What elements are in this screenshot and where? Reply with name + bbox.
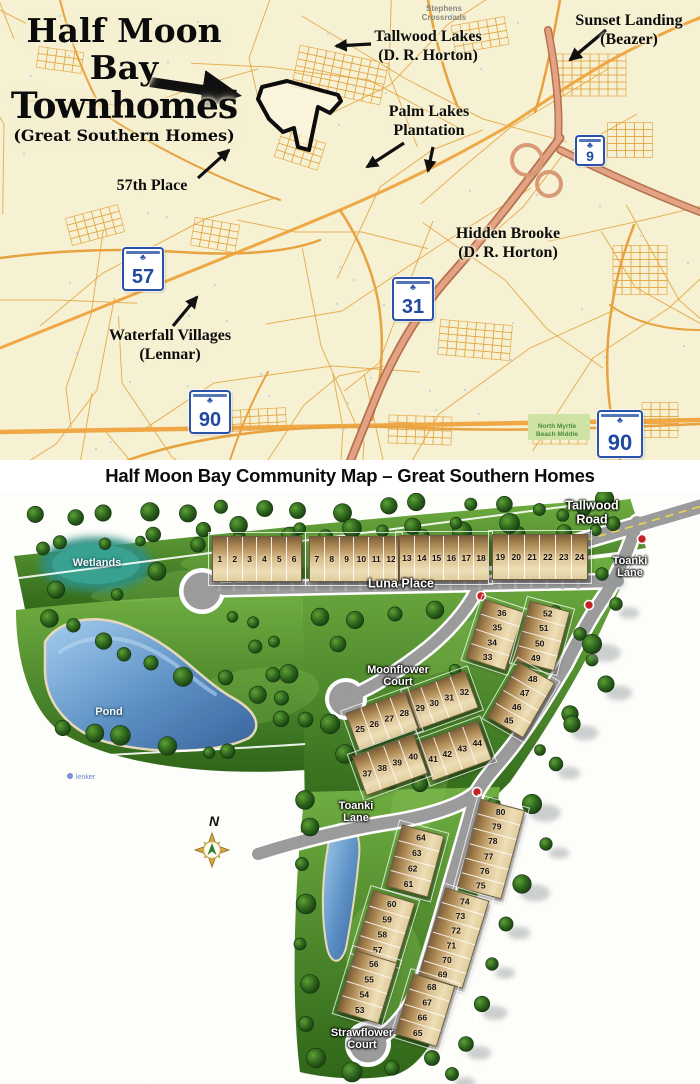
- arrow-palm-lakes-1: [367, 143, 404, 167]
- lot-number-26: 26: [370, 719, 379, 729]
- lot-number-10: 10: [357, 554, 366, 564]
- lot-7: 7: [310, 537, 324, 581]
- lot-number-8: 8: [329, 554, 334, 564]
- lot-number-22: 22: [543, 552, 552, 562]
- lot-number-69: 69: [438, 969, 447, 979]
- lot-number-73: 73: [456, 911, 465, 921]
- lot-number-58: 58: [378, 930, 387, 940]
- route-number: 57: [124, 265, 162, 289]
- annotation-hidden-brooke: Hidden Brooke(D. R. Horton): [456, 224, 560, 262]
- lot-number-1: 1: [218, 554, 223, 564]
- lot-number-18: 18: [476, 553, 485, 563]
- lot-number-38: 38: [378, 763, 387, 773]
- arrow-waterfall-villages: [173, 297, 197, 326]
- lot-number-24: 24: [575, 552, 584, 562]
- lot-number-77: 77: [484, 851, 493, 861]
- lot-number-6: 6: [292, 554, 297, 564]
- compass-rose: N: [195, 813, 229, 867]
- lot-number-12: 12: [386, 554, 395, 564]
- lot-20: 20: [508, 535, 524, 579]
- lot-number-36: 36: [497, 608, 506, 618]
- lot-number-3: 3: [247, 554, 252, 564]
- lot-number-47: 47: [520, 688, 529, 698]
- lot-number-14: 14: [417, 553, 426, 563]
- lot-number-21: 21: [527, 552, 536, 562]
- street-label-toanki-lane-upper: ToankiLane: [613, 555, 648, 579]
- lot-number-61: 61: [404, 879, 413, 889]
- lot-number-72: 72: [451, 926, 460, 936]
- lot-number-23: 23: [559, 552, 568, 562]
- lot-number-25: 25: [355, 724, 364, 734]
- lot-number-13: 13: [402, 553, 411, 563]
- lot-number-16: 16: [447, 553, 456, 563]
- page: Half Moon Bay Townhomes (Great Southern …: [0, 0, 700, 1084]
- lot-number-52: 52: [543, 609, 552, 619]
- lot-number-2: 2: [232, 554, 237, 564]
- area-label-pond: Pond: [95, 706, 123, 718]
- annotation-stephens-crossroads: StephensCrossroads: [422, 4, 466, 22]
- site-plan: N lenker 1234567891011121314151617181920…: [0, 492, 700, 1084]
- caption-text: Half Moon Bay Community Map – Great Sout…: [105, 465, 595, 487]
- stop-dot-luna-toanki: [585, 601, 594, 610]
- lot-number-39: 39: [393, 757, 402, 767]
- lot-number-63: 63: [412, 848, 421, 858]
- route-shield-9: ♣ 9: [575, 135, 605, 166]
- building-lots-7-12: 789101112: [309, 536, 399, 582]
- lot-number-41: 41: [428, 754, 437, 764]
- lot-number-9: 9: [344, 554, 349, 564]
- palmetto-icon: ♣: [410, 283, 416, 292]
- lot-number-67: 67: [423, 997, 432, 1007]
- lot-number-68: 68: [427, 982, 436, 992]
- lot-number-62: 62: [408, 864, 417, 874]
- route-shield-90: ♣ 90: [189, 390, 231, 434]
- street-label-moonflower-court: MoonflowerCourt: [367, 664, 429, 688]
- compass-n-label: N: [209, 813, 220, 829]
- stop-dot-tallwood-toanki: [638, 535, 647, 544]
- lot-number-32: 32: [459, 687, 468, 697]
- map-title-line1: Half Moon: [4, 12, 244, 49]
- building-lots-1-6: 123456: [212, 536, 302, 582]
- lot-number-46: 46: [512, 702, 521, 712]
- lot-13: 13: [400, 536, 414, 580]
- lot-5: 5: [271, 537, 286, 581]
- annotation-sunset-landing: Sunset Landing(Beazer): [575, 11, 682, 49]
- map-title-subtitle: (Great Southern Homes): [4, 127, 244, 145]
- half-moon-bay-site-outline: [258, 81, 341, 150]
- area-label-wetlands: Wetlands: [73, 557, 122, 569]
- lot-number-4: 4: [262, 554, 267, 564]
- lot-number-19: 19: [496, 552, 505, 562]
- lot-number-75: 75: [476, 881, 485, 891]
- lot-number-43: 43: [458, 743, 467, 753]
- locator-map: Half Moon Bay Townhomes (Great Southern …: [0, 0, 700, 460]
- lot-number-56: 56: [369, 959, 378, 969]
- lot-number-17: 17: [461, 553, 470, 563]
- lot-number-74: 74: [460, 897, 469, 907]
- map-title-line3: Townhomes: [4, 86, 244, 126]
- lot-number-70: 70: [443, 955, 452, 965]
- lot-8: 8: [324, 537, 339, 581]
- annotation-57th-place: 57th Place: [117, 176, 188, 195]
- lot-number-53: 53: [355, 1005, 364, 1015]
- lot-number-44: 44: [472, 738, 481, 748]
- annotation-palm-lakes-plantation: Palm LakesPlantation: [389, 102, 469, 140]
- lot-17: 17: [458, 536, 473, 580]
- route-number: 90: [599, 430, 641, 456]
- lot-4: 4: [256, 537, 271, 581]
- lot-24: 24: [571, 535, 587, 579]
- lot-number-28: 28: [399, 708, 408, 718]
- lot-number-79: 79: [492, 822, 501, 832]
- lot-number-30: 30: [430, 698, 439, 708]
- lot-number-54: 54: [360, 990, 369, 1000]
- map-title-line2: Bay: [4, 49, 244, 86]
- lot-number-64: 64: [416, 833, 425, 843]
- watermark-text: lenker: [76, 774, 96, 781]
- lot-number-40: 40: [408, 752, 417, 762]
- lot-number-27: 27: [385, 713, 394, 723]
- lot-number-49: 49: [531, 653, 540, 663]
- annotation-tallwood-lakes: Tallwood Lakes(D. R. Horton): [374, 27, 481, 65]
- lot-number-71: 71: [447, 940, 456, 950]
- palmetto-icon: ♣: [617, 416, 623, 425]
- lot-number-7: 7: [315, 554, 320, 564]
- watermark-logo: lenker: [67, 773, 96, 781]
- map-title: Half Moon Bay Townhomes (Great Southern …: [4, 12, 244, 145]
- route-number: 31: [394, 295, 432, 319]
- lot-number-59: 59: [383, 914, 392, 924]
- lot-15: 15: [429, 536, 444, 580]
- lot-9: 9: [339, 537, 354, 581]
- lot-number-45: 45: [504, 715, 513, 725]
- route-shield-31: ♣ 31: [392, 277, 434, 321]
- lot-2: 2: [227, 537, 242, 581]
- lot-number-50: 50: [535, 638, 544, 648]
- lot-number-42: 42: [443, 749, 452, 759]
- lot-18: 18: [473, 536, 488, 580]
- lot-3: 3: [242, 537, 257, 581]
- lot-number-65: 65: [413, 1028, 422, 1038]
- lot-19: 19: [493, 535, 508, 579]
- lot-number-80: 80: [496, 807, 505, 817]
- lot-number-60: 60: [387, 899, 396, 909]
- route-number: 9: [577, 148, 603, 164]
- annotation-north-myrtle-beach-middle-school: North MyrtleBeach Middle: [536, 423, 578, 438]
- street-label-tallwood-road: TallwoodRoad: [565, 500, 618, 527]
- street-label-toanki-lane-lower: ToankiLane: [339, 800, 374, 824]
- street-label-strawflower-court: StrawflowerCourt: [331, 1027, 393, 1051]
- lot-number-29: 29: [415, 703, 424, 713]
- lot-number-15: 15: [432, 553, 441, 563]
- lot-6: 6: [286, 537, 301, 581]
- lot-number-76: 76: [480, 866, 489, 876]
- lot-number-55: 55: [365, 974, 374, 984]
- lot-21: 21: [524, 535, 540, 579]
- lot-number-5: 5: [277, 554, 282, 564]
- street-label-luna-place: Luna Place: [368, 577, 434, 591]
- lot-12: 12: [383, 537, 398, 581]
- lot-11: 11: [368, 537, 383, 581]
- lot-16: 16: [443, 536, 458, 580]
- lot-10: 10: [353, 537, 368, 581]
- lot-number-78: 78: [488, 837, 497, 847]
- lot-number-37: 37: [362, 768, 371, 778]
- building-lots-13-18: 131415161718: [399, 535, 489, 581]
- arrow-tallwood-lakes: [336, 44, 371, 46]
- route-shield-90: ♣ 90: [597, 410, 643, 458]
- lot-number-31: 31: [445, 692, 454, 702]
- annotation-waterfall-villages: Waterfall Villages(Lennar): [109, 326, 231, 364]
- lot-number-66: 66: [418, 1013, 427, 1023]
- route-number: 90: [191, 408, 229, 432]
- lot-number-11: 11: [372, 554, 381, 564]
- lot-number-48: 48: [528, 675, 537, 685]
- lot-14: 14: [414, 536, 429, 580]
- lot-number-51: 51: [539, 624, 548, 634]
- lot-number-35: 35: [493, 623, 502, 633]
- lot-1: 1: [213, 537, 227, 581]
- lot-number-57: 57: [373, 945, 382, 955]
- lot-number-20: 20: [512, 552, 521, 562]
- stop-dot-toanki-strawflower: [473, 788, 482, 797]
- palmetto-icon: ♣: [140, 253, 146, 262]
- lot-23: 23: [555, 535, 571, 579]
- palmetto-icon: ♣: [207, 396, 213, 405]
- lot-number-33: 33: [483, 652, 492, 662]
- lot-22: 22: [539, 535, 555, 579]
- lot-number-34: 34: [488, 637, 497, 647]
- caption-bar: Half Moon Bay Community Map – Great Sout…: [0, 460, 700, 492]
- building-lots-19-24: 192021222324: [492, 534, 588, 580]
- route-shield-57: ♣ 57: [122, 247, 164, 291]
